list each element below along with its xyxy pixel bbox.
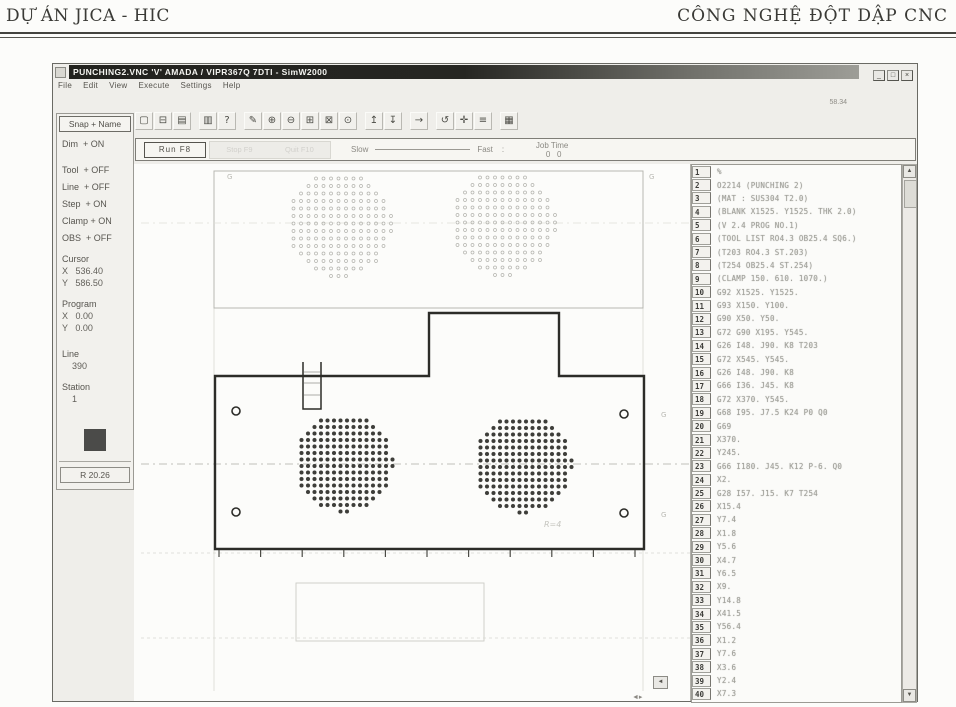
sidebar-divider (59, 461, 131, 462)
nc-line[interactable]: 32X9. (692, 580, 901, 593)
toolbar-group: ↥↧ (365, 112, 403, 130)
scanned-page: DỰ ÁN JICA - HIC CÔNG NGHỆ ĐỘT DẬP CNC P… (0, 0, 956, 707)
nc-line-text: G66 I180. J45. K12 P-6. Q0 (711, 462, 842, 471)
nc-line-text: X15.4 (711, 502, 741, 511)
nc-line-number: 31 (692, 567, 711, 579)
sidebar-station-value: 1 (62, 393, 133, 405)
speed-slider[interactable]: Slow Fast : (351, 145, 504, 154)
nc-line[interactable]: 37Y7.6 (692, 647, 901, 660)
toolbar-group: ▥? (199, 112, 237, 130)
speed-slider-track[interactable] (375, 149, 470, 150)
nc-line-text: G69 (711, 422, 731, 431)
nc-line-text: G26 I48. J90. K8 T203 (711, 341, 818, 350)
svg-text:R=4: R=4 (544, 520, 561, 529)
nc-line[interactable]: 6(TOOL LIST RO4.3 OB25.4 SQ6.) (692, 232, 901, 245)
app-icon (55, 67, 66, 78)
nc-line-text: Y7.4 (711, 515, 736, 524)
sidebar-station-label: Station (62, 381, 133, 393)
fast-label: Fast (477, 145, 493, 154)
nc-line-text: X1.2 (711, 636, 736, 645)
title-bar-dark: PUNCHING2.VNC 'V' AMADA / VIPR367Q 7DTI … (69, 65, 859, 79)
nc-line-text: O2214 (PUNCHING 2) (711, 181, 804, 190)
nc-line-number: 32 (692, 581, 711, 593)
nc-line[interactable]: 34X41.5 (692, 607, 901, 620)
separator: : (502, 145, 504, 154)
nc-line-number: 22 (692, 447, 711, 459)
nc-line[interactable]: 18G72 X370. Y545. (692, 393, 901, 406)
run-button[interactable]: Run F8 (144, 142, 206, 158)
nc-line-text: X2. (711, 475, 731, 484)
nc-line-text: G72 G90 X195. Y545. (711, 328, 809, 337)
nc-line-text: G92 X1525. Y1525. (711, 288, 799, 297)
nc-line[interactable]: 10G92 X1525. Y1525. (692, 286, 901, 299)
nc-line[interactable]: 5(V 2.4 PROG NO.1) (692, 219, 901, 232)
sidebar-toggle-line[interactable]: Line + OFF (62, 181, 133, 193)
nc-line[interactable]: 1% (692, 165, 901, 178)
sidebar-toggle-obs[interactable]: OBS + OFF (62, 232, 133, 244)
app-window: PUNCHING2.VNC 'V' AMADA / VIPR367Q 7DTI … (52, 63, 918, 702)
toolbar-group: → (410, 112, 429, 130)
nc-line-text: Y7.6 (711, 649, 736, 658)
nc-line-number: 10 (692, 286, 711, 298)
window-title: PUNCHING2.VNC 'V' AMADA / VIPR367Q 7DTI … (69, 67, 327, 77)
nc-line-number: 37 (692, 648, 711, 660)
coordinate-note: 58.34 (829, 99, 847, 106)
toolbar: ▢⊟▤▥?✎⊕⊖⊞⊠⊙↥↧→↺✛≡▦ (135, 110, 526, 131)
nc-line[interactable]: 20G69 (692, 419, 901, 432)
canvas-corner-arrows-icon[interactable]: ◄▸ (632, 693, 642, 701)
svg-text:G: G (227, 173, 232, 181)
nc-line-number: 34 (692, 608, 711, 620)
sidebar-program-y: Y 0.00 (62, 322, 133, 334)
nc-line[interactable]: 25G28 I57. J15. K7 T254 (692, 486, 901, 499)
sidebar-items: Dim + ONTool + OFFLine + OFFStep + ONCla… (57, 132, 133, 405)
menu-edit[interactable]: Edit (83, 81, 98, 95)
pointer-icon[interactable]: ✎ (244, 112, 262, 130)
list-icon[interactable]: ≡ (474, 112, 492, 130)
stop-button-ghost: Stop F9 (226, 145, 252, 154)
nc-line-number: 24 (692, 474, 711, 486)
slow-label: Slow (351, 145, 368, 154)
nc-line-number: 33 (692, 594, 711, 606)
nc-line-number: 21 (692, 434, 711, 446)
nc-line-text: X370. (711, 435, 741, 444)
nc-line-number: 13 (692, 326, 711, 338)
save-icon[interactable]: ▤ (173, 112, 191, 130)
sidebar-program-x: X 0.00 (62, 310, 133, 322)
nc-line[interactable]: 36X1.2 (692, 634, 901, 647)
nc-line-number: 19 (692, 407, 711, 419)
nc-line[interactable]: 27Y7.4 (692, 513, 901, 526)
run-forward-icon[interactable]: → (410, 112, 428, 130)
doc-title-left: DỰ ÁN JICA - HIC (6, 6, 170, 26)
maximize-button[interactable]: □ (887, 70, 899, 81)
nc-line[interactable]: 16G26 I48. J90. K8 (692, 366, 901, 379)
zoom-in-icon[interactable]: ⊕ (263, 112, 281, 130)
nc-line[interactable]: 23G66 I180. J45. K12 P-6. Q0 (692, 460, 901, 473)
nc-line-text: (BLANK X1525. Y1525. THK 2.0) (711, 207, 857, 216)
crosshair-icon[interactable]: ✛ (455, 112, 473, 130)
svg-text:G: G (649, 173, 654, 181)
nc-line-number: 36 (692, 634, 711, 646)
nc-line[interactable]: 13G72 G90 X195. Y545. (692, 326, 901, 339)
nc-line[interactable]: 29Y5.6 (692, 540, 901, 553)
zoom-fit-icon[interactable]: ⊠ (320, 112, 338, 130)
nc-line[interactable]: 14G26 I48. J90. K8 T203 (692, 339, 901, 352)
nc-line-text: Y5.6 (711, 542, 736, 551)
nc-line-number: 6 (692, 233, 711, 245)
sidebar-panel: Snap + Name Dim + ONTool + OFFLine + OFF… (56, 113, 134, 490)
sidebar-toggle-step[interactable]: Step + ON (62, 198, 133, 210)
job-time-values: 0 0 (546, 150, 562, 159)
nc-line-number: 15 (692, 353, 711, 365)
nc-line-text: G90 X50. Y50. (711, 314, 780, 323)
step-down-icon[interactable]: ↧ (384, 112, 402, 130)
toolbar-group: ▢⊟▤ (135, 112, 192, 130)
help-icon[interactable]: ? (218, 112, 236, 130)
nc-line[interactable]: 2O2214 (PUNCHING 2) (692, 178, 901, 191)
nc-line-number: 11 (692, 300, 711, 312)
nc-line-text: Y14.8 (711, 596, 741, 605)
step-up-icon[interactable]: ↥ (365, 112, 383, 130)
nc-line-number: 9 (692, 273, 711, 285)
nc-line-number: 5 (692, 219, 711, 231)
nc-line[interactable]: 4(BLANK X1525. Y1525. THK 2.0) (692, 205, 901, 218)
nc-line[interactable]: 39Y2.4 (692, 674, 901, 687)
nc-line-text: % (711, 167, 722, 176)
quit-button-ghost: Quit F10 (285, 145, 314, 154)
nc-line-number: 14 (692, 340, 711, 352)
nc-line-text: Y2.4 (711, 676, 736, 685)
window-controls: _ □ × (871, 70, 913, 81)
nc-line[interactable]: 19G68 I95. J7.5 K24 P0 Q0 (692, 406, 901, 419)
nc-line-number: 4 (692, 206, 711, 218)
nc-line-number: 39 (692, 675, 711, 687)
snap-name-button[interactable]: Snap + Name (59, 116, 131, 132)
nc-line-text: G93 X150. Y100. (711, 301, 789, 310)
nc-line[interactable]: 38X3.6 (692, 660, 901, 673)
zoom-prev-icon[interactable]: ⊙ (339, 112, 357, 130)
nc-line-text: G72 X370. Y545. (711, 395, 789, 404)
close-button[interactable]: × (901, 70, 913, 81)
nc-line-text: (T254 OB25.4 ST.254) (711, 261, 813, 270)
nc-line[interactable]: 21X370. (692, 433, 901, 446)
toolbar-group: ↺✛≡ (436, 112, 493, 130)
sidebar-line-label: Line (62, 348, 133, 360)
new-icon[interactable]: ▢ (135, 112, 153, 130)
nc-line[interactable]: 3(MAT : SUS304 T2.0) (692, 192, 901, 205)
svg-text:G: G (661, 411, 666, 419)
nc-line-text: X4.7 (711, 556, 736, 565)
nc-line[interactable]: 24X2. (692, 473, 901, 486)
nc-line[interactable]: 9(CLAMP 150. 610. 1070.) (692, 272, 901, 285)
nc-line[interactable]: 35Y56.4 (692, 620, 901, 633)
nc-line-number: 38 (692, 661, 711, 673)
nc-line-number: 27 (692, 514, 711, 526)
nc-line[interactable]: 26X15.4 (692, 500, 901, 513)
nc-line-text: (TOOL LIST RO4.3 OB25.4 SQ6.) (711, 234, 857, 243)
title-bar[interactable]: PUNCHING2.VNC 'V' AMADA / VIPR367Q 7DTI … (54, 65, 914, 79)
nc-line[interactable]: 31Y6.5 (692, 567, 901, 580)
nc-line-number: 18 (692, 393, 711, 405)
nc-line-number: 35 (692, 621, 711, 633)
menu-help[interactable]: Help (223, 81, 241, 95)
nc-line-number: 3 (692, 192, 711, 204)
nc-line[interactable]: 40X7.3 (692, 687, 901, 700)
disabled-buttons: Stop F9 Quit F10 (209, 141, 331, 159)
part-drawing: GGGGR=4 (134, 164, 691, 701)
run-control-bar: Run F8 Stop F9 Quit F10 Slow Fast : Job … (135, 138, 916, 161)
menu-execute[interactable]: Execute (139, 81, 170, 95)
list-scrollbar[interactable]: ▲ ▼ (902, 164, 917, 703)
nc-line-text: (MAT : SUS304 T2.0) (711, 194, 809, 203)
menu-view[interactable]: View (109, 81, 127, 95)
nc-line[interactable]: 30X4.7 (692, 553, 901, 566)
nc-line-number: 29 (692, 541, 711, 553)
nc-line-number: 8 (692, 259, 711, 271)
nc-line-number: 26 (692, 500, 711, 512)
nc-line-text: X9. (711, 582, 731, 591)
nc-line-number: 7 (692, 246, 711, 258)
sidebar-cursor-label: Cursor (62, 253, 133, 265)
nc-line-text: (V 2.4 PROG NO.1) (711, 221, 799, 230)
drawing-canvas[interactable]: GGGGR=4 ◄ ◄▸ (134, 164, 691, 701)
nc-line-text: X3.6 (711, 663, 736, 672)
nc-line-number: 23 (692, 460, 711, 472)
doc-title-right: CÔNG NGHỆ ĐỘT DẬP CNC (677, 6, 948, 26)
nc-line-text: (T203 RO4.3 ST.203) (711, 248, 809, 257)
nc-line[interactable]: 33Y14.8 (692, 594, 901, 607)
nc-line-number: 30 (692, 554, 711, 566)
document-header: DỰ ÁN JICA - HIC CÔNG NGHỆ ĐỘT DẬP CNC (0, 4, 956, 30)
nc-line[interactable]: 17G66 I36. J45. K8 (692, 379, 901, 392)
nc-line-text: X41.5 (711, 609, 741, 618)
sidebar-toggle-dim[interactable]: Dim + ON (62, 138, 133, 150)
nc-program-list[interactable]: 1%2O2214 (PUNCHING 2)3(MAT : SUS304 T2.0… (691, 164, 902, 703)
nc-line-number: 25 (692, 487, 711, 499)
nc-line-text: G28 I57. J15. K7 T254 (711, 489, 818, 498)
nc-line[interactable]: 12G90 X50. Y50. (692, 312, 901, 325)
nc-line-number: 2 (692, 179, 711, 191)
scroll-up-icon[interactable]: ▲ (903, 165, 916, 178)
zoom-out-icon[interactable]: ⊖ (282, 112, 300, 130)
header-rule-thick (0, 32, 956, 34)
tool-color-swatch (84, 429, 106, 451)
menu-bar: FileEditViewExecuteSettingsHelp (58, 81, 251, 95)
nc-line-text: X7.3 (711, 689, 736, 698)
nc-line[interactable]: 11G93 X150. Y100. (692, 299, 901, 312)
nc-line-text: Y56.4 (711, 622, 741, 631)
print-icon[interactable]: ▥ (199, 112, 217, 130)
scroll-down-icon[interactable]: ▼ (903, 689, 916, 702)
nc-editor-icon[interactable]: ▦ (500, 112, 518, 130)
nc-line-text: G26 I48. J90. K8 (711, 368, 794, 377)
nc-line-text: G72 X545. Y545. (711, 355, 789, 364)
rotate-icon[interactable]: ↺ (436, 112, 454, 130)
canvas-scroll-left-icon[interactable]: ◄ (653, 676, 668, 689)
job-time: Job Time 0 0 (518, 132, 568, 168)
nc-line[interactable]: 28X1.8 (692, 527, 901, 540)
nc-line-number: 17 (692, 380, 711, 392)
toolbar-group: ▦ (500, 112, 519, 130)
open-icon[interactable]: ⊟ (154, 112, 172, 130)
nc-line-text: (CLAMP 150. 610. 1070.) (711, 274, 828, 283)
sidebar-cursor-x: X 536.40 (62, 265, 133, 277)
nc-line-number: 20 (692, 420, 711, 432)
nc-line-text: Y6.5 (711, 569, 736, 578)
header-rule-thin (0, 37, 956, 38)
job-time-label: Job Time (536, 141, 568, 150)
menu-settings[interactable]: Settings (181, 81, 212, 95)
sidebar-line-value: 390 (62, 360, 133, 372)
sidebar-toggle-clamp[interactable]: Clamp + ON (62, 215, 133, 227)
nc-line[interactable]: 15G72 X545. Y545. (692, 352, 901, 365)
nc-line-text: G68 I95. J7.5 K24 P0 Q0 (711, 408, 828, 417)
scrollbar-thumb[interactable] (904, 180, 917, 208)
sidebar-toggle-tool[interactable]: Tool + OFF (62, 164, 133, 176)
nc-line[interactable]: 8(T254 OB25.4 ST.254) (692, 259, 901, 272)
nc-line-number: 1 (692, 166, 711, 178)
minimize-button[interactable]: _ (873, 70, 885, 81)
sidebar-program-label: Program (62, 298, 133, 310)
nc-line[interactable]: 22Y245. (692, 446, 901, 459)
radius-button[interactable]: R 20.26 (60, 467, 130, 483)
toolbar-group: ✎⊕⊖⊞⊠⊙ (244, 112, 358, 130)
nc-line-text: G66 I36. J45. K8 (711, 381, 794, 390)
menu-file[interactable]: File (58, 81, 72, 95)
svg-text:G: G (661, 511, 666, 519)
nc-line-number: 12 (692, 313, 711, 325)
nc-line-text: X1.8 (711, 529, 736, 538)
nc-line[interactable]: 7(T203 RO4.3 ST.203) (692, 245, 901, 258)
nc-line-number: 28 (692, 527, 711, 539)
nc-line-number: 16 (692, 367, 711, 379)
nc-line-number: 40 (692, 688, 711, 700)
sidebar-cursor-y: Y 586.50 (62, 277, 133, 289)
nc-line-text: Y245. (711, 448, 741, 457)
zoom-window-icon[interactable]: ⊞ (301, 112, 319, 130)
